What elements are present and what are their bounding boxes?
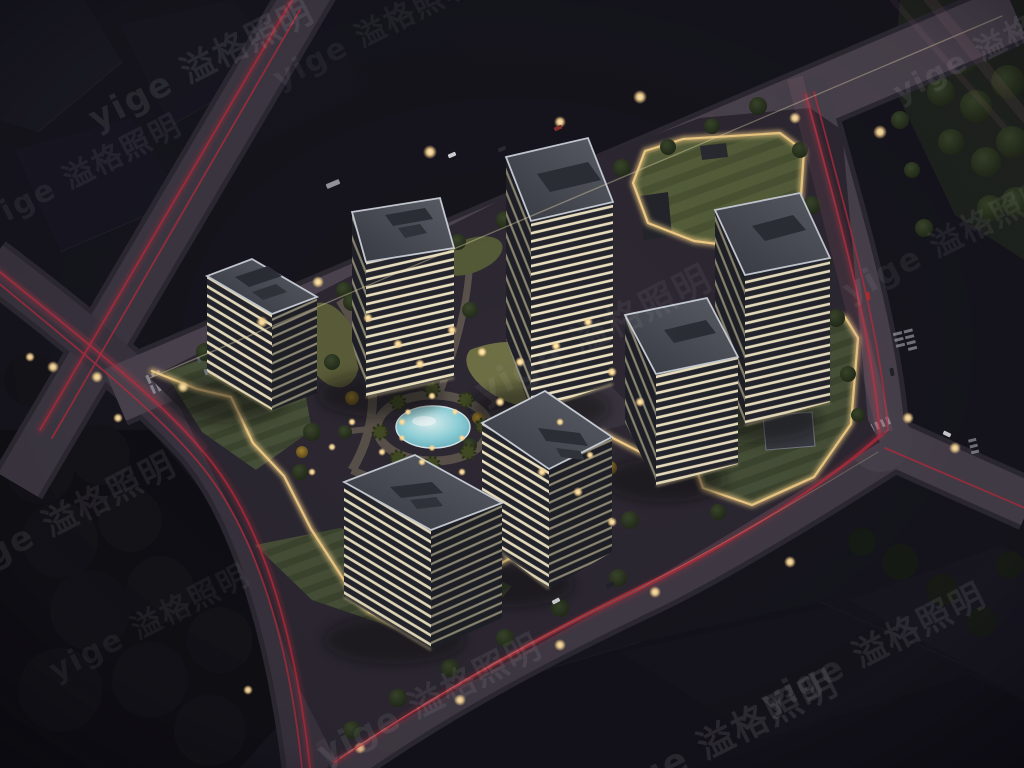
vignette-overlay (0, 0, 1024, 768)
aerial-night-rendering: yige 溢格照明 yige 溢格照明 yige 溢格照明 yige 溢格照明 … (0, 0, 1024, 768)
scene-canvas (0, 0, 1024, 768)
